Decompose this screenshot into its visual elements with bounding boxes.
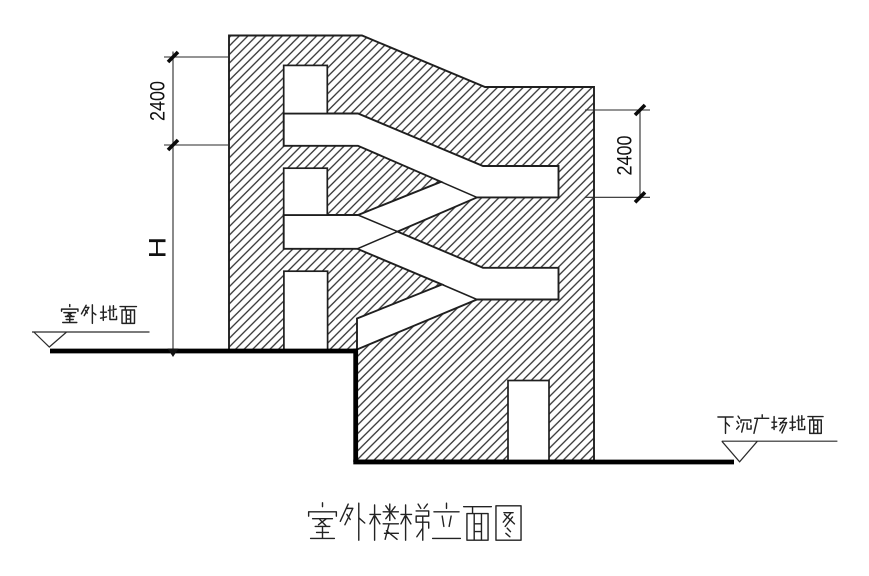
svg-text:H: H	[143, 237, 170, 259]
svg-text:2400: 2400	[613, 135, 637, 175]
svg-text:2400: 2400	[146, 81, 170, 121]
